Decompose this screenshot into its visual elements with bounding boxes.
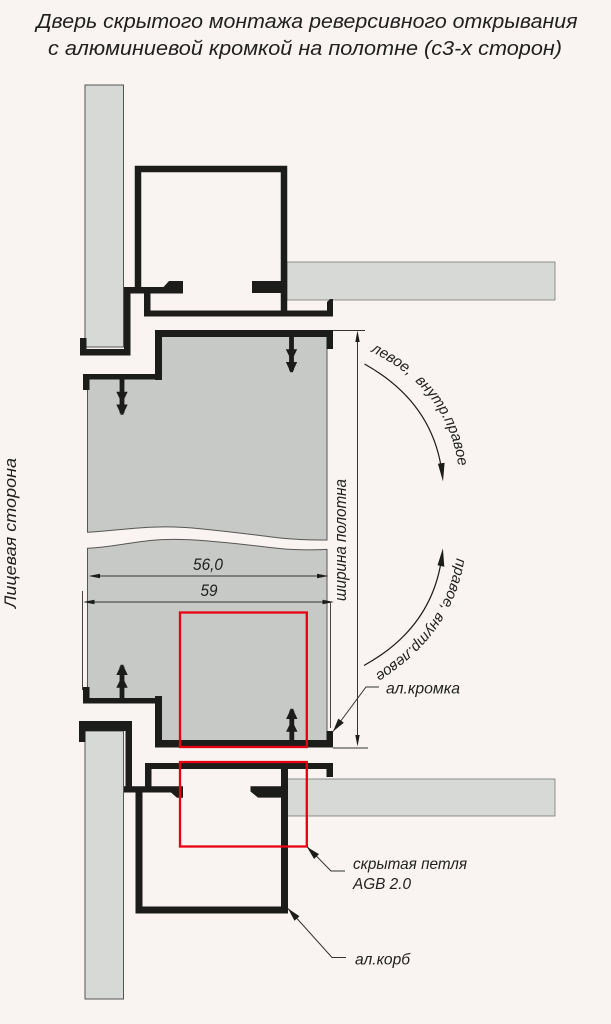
svg-text:56,0: 56,0 bbox=[193, 555, 223, 574]
svg-text:59: 59 bbox=[201, 581, 218, 600]
svg-text:ал.корб: ал.корб bbox=[355, 952, 411, 969]
svg-text:Дверь скрытого монтажа реверси: Дверь скрытого монтажа реверсивного откр… bbox=[34, 10, 577, 33]
svg-text:скрытая петля: скрытая петля bbox=[353, 856, 467, 873]
svg-text:ширина полотна: ширина полотна bbox=[331, 479, 350, 601]
svg-text:Лицевая сторона: Лицевая сторона bbox=[1, 458, 20, 609]
svg-text:ал.кромка: ал.кромка bbox=[386, 681, 460, 698]
svg-text:AGB 2.0: AGB 2.0 bbox=[352, 876, 411, 893]
svg-text:с алюминиевой кромкой на полот: с алюминиевой кромкой на полотне (с3-х с… bbox=[48, 37, 562, 60]
